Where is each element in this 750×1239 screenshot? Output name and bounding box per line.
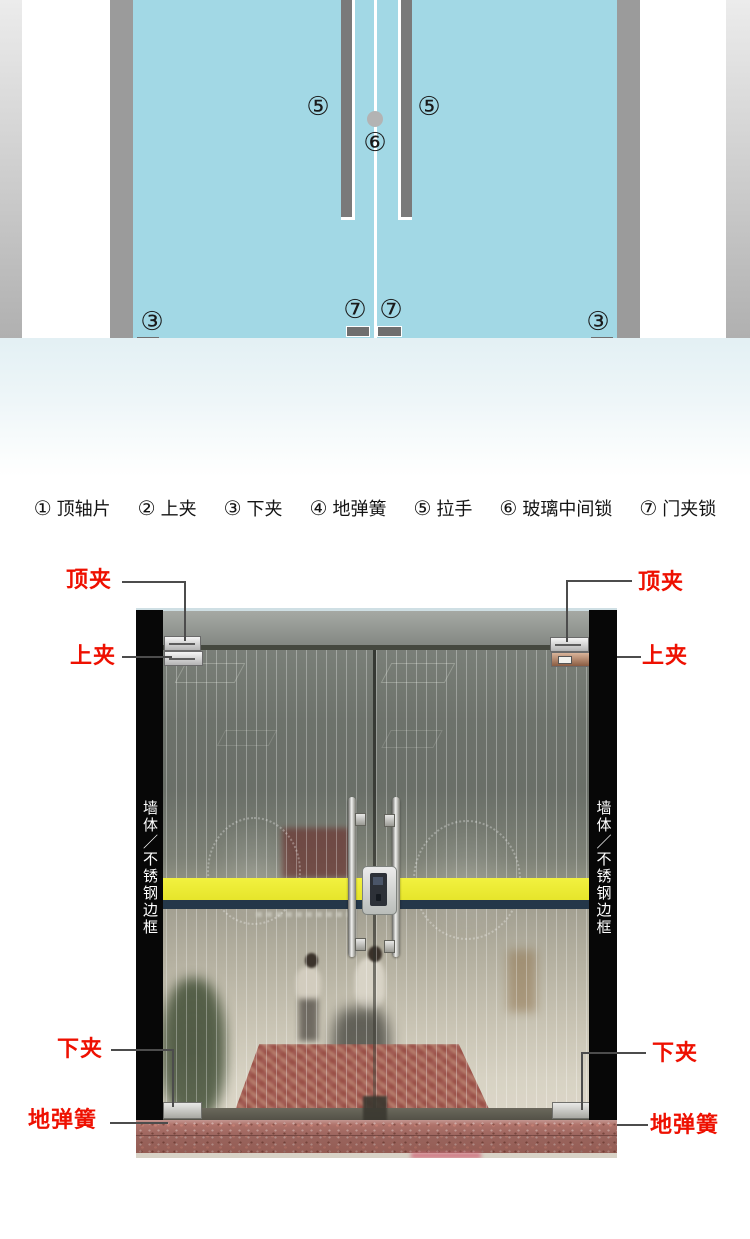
handle-mount-pin — [384, 940, 395, 953]
legend-label: 门夹锁 — [662, 495, 716, 521]
glass-panel-left — [133, 0, 374, 338]
glass-door-product-page: ⑤ ⑤ ⑥ ⑦ ⑦ ③ ③ ④ ④ ① 顶轴片 ② 上夹 ③ 下夹 — [0, 0, 750, 1239]
annotation-upper-clamp-right: 上夹 — [642, 646, 688, 668]
legend-item-upper-clamp: ② 上夹 — [138, 495, 197, 521]
handle-mount-pin — [355, 813, 366, 826]
door-center-gap — [374, 0, 377, 338]
clamp-detail-line — [555, 644, 581, 646]
legend-item-center-lock: ⑥ 玻璃中间锁 — [499, 495, 612, 521]
legend-label: 上夹 — [161, 495, 197, 521]
legend-num: ① — [34, 496, 52, 520]
left-frame-bar: 墙体／不锈钢边框 — [136, 610, 163, 1120]
callout-handle-left: ⑤ — [306, 94, 329, 120]
access-control-device — [362, 866, 397, 915]
door-handle-left-bar — [341, 0, 355, 220]
callout-door-lock-left: ⑦ — [343, 297, 366, 323]
door-handle-right-bar — [398, 0, 412, 220]
annotation-floor-spring-right: 地弹簧 — [650, 1115, 719, 1137]
annotation-upper-clamp-left: 上夹 — [70, 646, 116, 668]
callout-handle-right: ⑤ — [417, 94, 440, 120]
leader-line — [122, 656, 172, 658]
annotation-top-clamp-left: 顶夹 — [66, 570, 112, 592]
wall-sign-reflection — [256, 912, 348, 917]
door-clamp-lock-left — [347, 327, 369, 336]
legend-num: ③ — [224, 496, 242, 520]
upper-clamp-left-hardware — [164, 651, 203, 666]
clamp-detail-line — [169, 643, 195, 645]
leader-line — [566, 580, 632, 582]
clamp-detail-line — [169, 658, 195, 660]
legend-label: 玻璃中间锁 — [522, 495, 612, 521]
legend-label: 下夹 — [247, 495, 283, 521]
leader-line — [581, 1052, 646, 1054]
glass-panel-right — [377, 0, 617, 338]
callout-bottom-clamp-left: ③ — [140, 309, 163, 335]
floor-spring-cover-left — [163, 1102, 202, 1119]
leader-line — [122, 581, 185, 583]
callout-bottom-clamp-right: ③ — [586, 309, 609, 335]
parts-legend: ① 顶轴片 ② 上夹 ③ 下夹 ④ 地弹簧 ⑤ 拉手 ⑥ 玻璃中间锁 ⑦ 门夹锁 — [0, 488, 750, 528]
marble-grout-line — [136, 1135, 617, 1136]
legend-item-top-pivot: ① 顶轴片 — [34, 495, 111, 521]
annotation-lower-clamp-right: 下夹 — [652, 1043, 698, 1065]
marble-step-shading — [136, 1120, 617, 1153]
leader-line — [184, 581, 186, 641]
legend-label: 拉手 — [436, 495, 472, 521]
legend-item-door-clamp-lock: ⑦ 门夹锁 — [639, 495, 716, 521]
legend-num: ⑦ — [639, 496, 657, 520]
center-lock-dot — [367, 111, 383, 127]
upper-clamp-right-hardware — [551, 652, 591, 667]
door-top-frame — [136, 611, 617, 645]
concrete-strip — [136, 1153, 617, 1158]
handle-mount-pin — [384, 814, 395, 827]
legend-item-lower-clamp: ③ 下夹 — [224, 495, 283, 521]
leader-line — [566, 580, 568, 642]
handle-mount-pin — [355, 938, 366, 951]
legend-num: ⑤ — [413, 496, 431, 520]
legend-num: ⑥ — [499, 496, 517, 520]
legend-label: 顶轴片 — [57, 495, 111, 521]
floor-spring-cover-right — [552, 1102, 591, 1119]
callout-center-lock: ⑥ — [363, 130, 386, 156]
left-wall-strip — [0, 0, 22, 338]
annotation-top-clamp-right: 顶夹 — [638, 572, 684, 594]
legend-label: 地弹簧 — [332, 495, 386, 521]
right-wall-strip — [726, 0, 750, 338]
right-frame-bar: 墙体／不锈钢边框 — [589, 610, 617, 1120]
leader-line — [581, 1052, 583, 1110]
right-frame-bar-label: 墙体／不锈钢边框 — [589, 795, 617, 941]
annotation-lower-clamp-left: 下夹 — [57, 1039, 103, 1061]
legend-num: ④ — [310, 496, 328, 520]
access-control-screen — [373, 877, 383, 885]
top-clamp-right-hardware — [550, 637, 589, 652]
left-frame-column — [110, 0, 133, 338]
door-clamp-lock-right — [378, 327, 401, 336]
bottom-center-patch — [363, 1096, 387, 1122]
installed-door-photo: 墙体／不锈钢边框 墙体／不锈钢边框 — [136, 608, 617, 1158]
pink-paint-smudge — [411, 1153, 481, 1158]
access-control-keyhole — [376, 894, 381, 901]
leader-line — [111, 1049, 174, 1051]
leader-line — [172, 1049, 174, 1107]
top-clamp-left-hardware — [164, 636, 201, 651]
annotation-floor-spring-left: 地弹簧 — [28, 1110, 97, 1132]
callout-door-lock-right: ⑦ — [379, 297, 402, 323]
leader-line — [617, 656, 641, 658]
leader-line — [617, 1124, 648, 1126]
clamp-label-chip — [558, 656, 572, 664]
right-frame-column — [617, 0, 640, 338]
legend-num: ② — [138, 496, 156, 520]
floor-surface — [0, 338, 750, 477]
leader-line — [110, 1122, 168, 1124]
legend-item-handle: ⑤ 拉手 — [413, 495, 472, 521]
left-frame-bar-label: 墙体／不锈钢边框 — [136, 795, 163, 941]
legend-item-floor-spring: ④ 地弹簧 — [310, 495, 387, 521]
